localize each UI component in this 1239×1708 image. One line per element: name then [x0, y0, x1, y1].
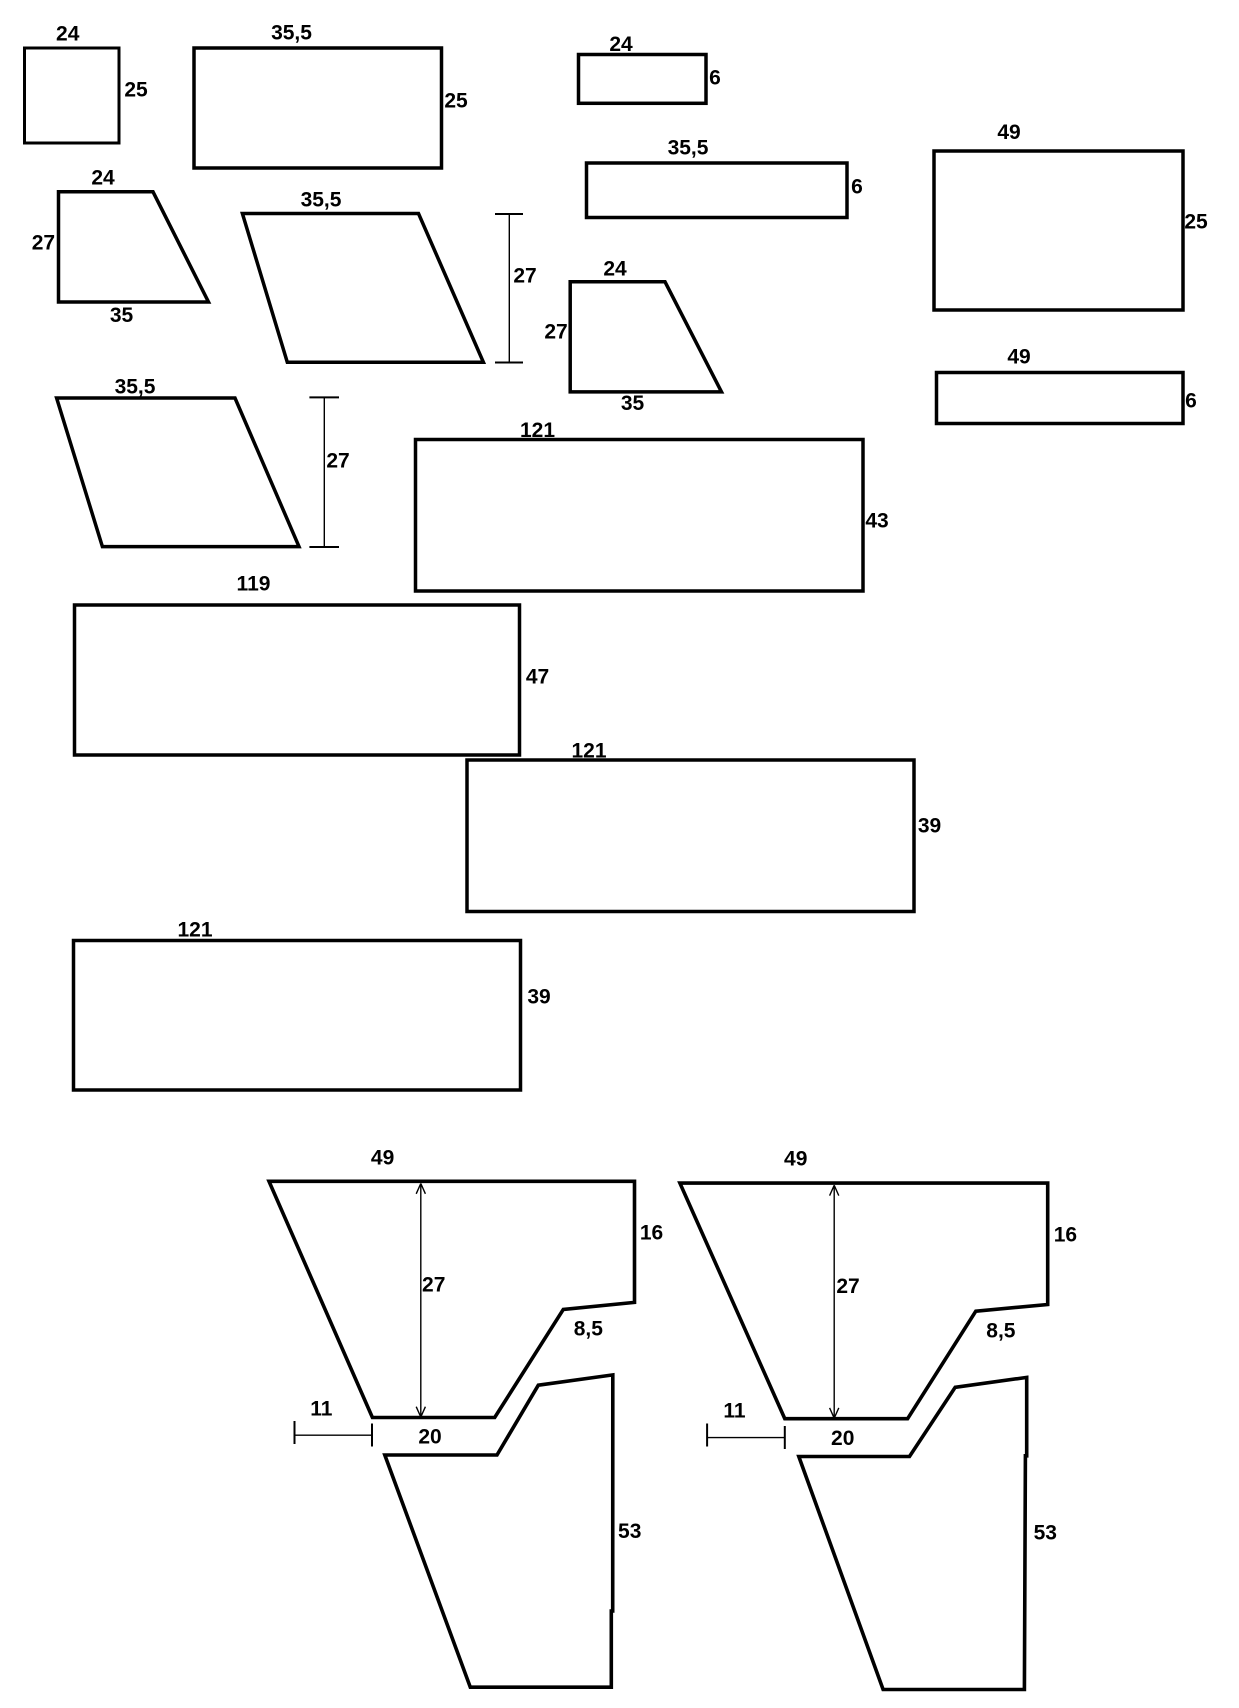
svg-text:27: 27 — [544, 320, 567, 343]
svg-text:35,5: 35,5 — [301, 188, 342, 211]
svg-text:6: 6 — [851, 175, 863, 198]
svg-text:49: 49 — [1007, 345, 1030, 368]
svg-text:27: 27 — [32, 231, 55, 254]
svg-text:16: 16 — [1054, 1224, 1077, 1247]
svg-text:53: 53 — [618, 1520, 641, 1543]
svg-text:6: 6 — [1185, 389, 1197, 412]
svg-text:25: 25 — [1184, 210, 1208, 233]
svg-text:49: 49 — [997, 121, 1020, 144]
svg-text:43: 43 — [865, 509, 888, 532]
svg-text:24: 24 — [56, 22, 80, 45]
svg-text:49: 49 — [784, 1147, 807, 1170]
svg-text:27: 27 — [513, 264, 536, 287]
svg-text:25: 25 — [444, 89, 468, 112]
svg-text:11: 11 — [310, 1398, 333, 1421]
svg-text:11: 11 — [723, 1399, 746, 1422]
svg-text:49: 49 — [371, 1146, 394, 1169]
svg-text:6: 6 — [709, 66, 721, 89]
svg-text:16: 16 — [640, 1221, 663, 1244]
svg-text:25: 25 — [124, 78, 148, 101]
svg-text:39: 39 — [527, 985, 550, 1008]
svg-text:20: 20 — [831, 1427, 854, 1450]
svg-text:53: 53 — [1034, 1522, 1057, 1545]
svg-text:20: 20 — [418, 1425, 441, 1448]
svg-text:35,5: 35,5 — [271, 21, 312, 44]
svg-text:35,5: 35,5 — [115, 375, 156, 398]
svg-text:121: 121 — [177, 918, 212, 941]
svg-text:24: 24 — [609, 33, 633, 56]
svg-text:24: 24 — [91, 166, 115, 189]
svg-text:39: 39 — [918, 814, 941, 837]
svg-text:119: 119 — [237, 572, 271, 595]
svg-text:35: 35 — [621, 392, 645, 415]
svg-text:8,5: 8,5 — [574, 1317, 604, 1340]
svg-text:27: 27 — [422, 1273, 445, 1296]
svg-text:35,5: 35,5 — [668, 136, 709, 159]
svg-text:121: 121 — [520, 419, 555, 442]
svg-text:35: 35 — [110, 304, 134, 327]
svg-text:47: 47 — [526, 665, 549, 688]
svg-text:24: 24 — [603, 257, 627, 280]
svg-text:8,5: 8,5 — [986, 1320, 1016, 1343]
svg-text:27: 27 — [836, 1275, 859, 1298]
svg-text:27: 27 — [326, 449, 349, 472]
svg-text:121: 121 — [571, 739, 606, 762]
